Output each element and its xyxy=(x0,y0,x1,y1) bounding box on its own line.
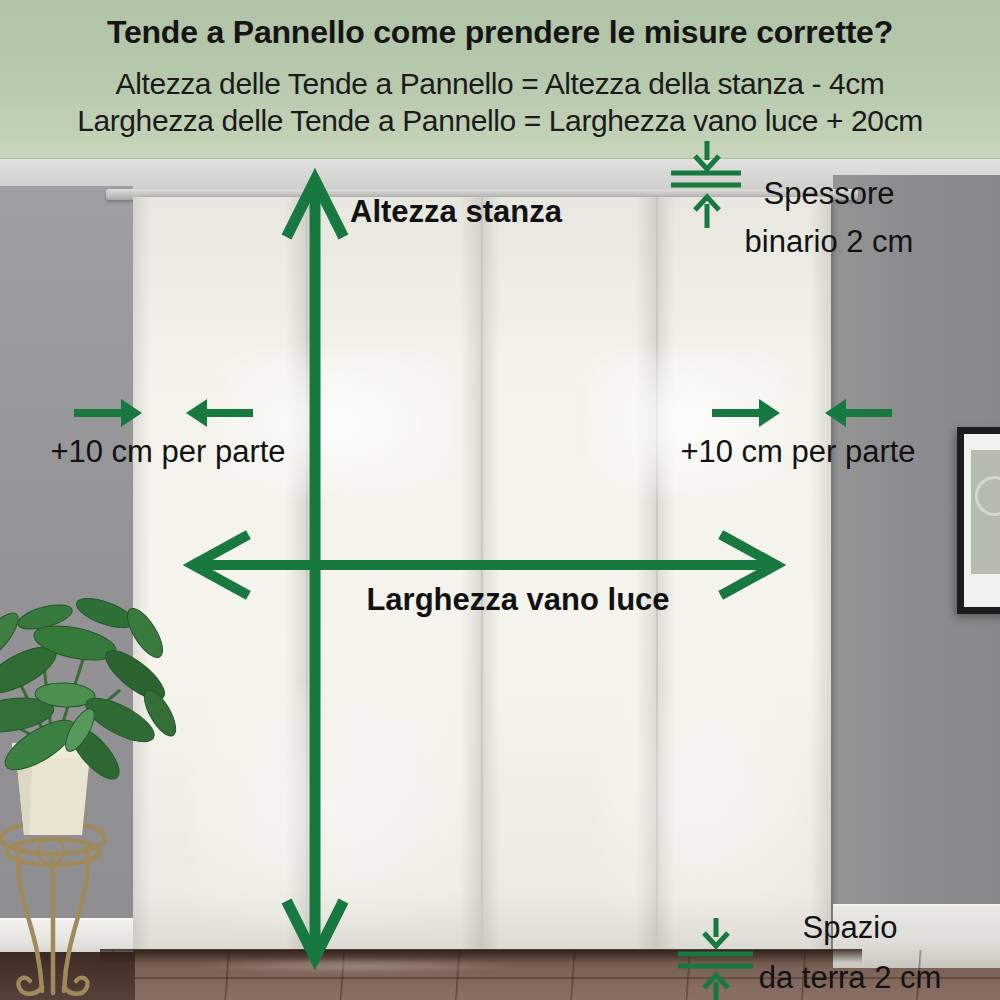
width-formula-text: Larghezza delle Tende a Pannello = Largh… xyxy=(0,104,1000,138)
picture-art xyxy=(971,450,1000,574)
floor-gap-label: Spazio da terra 2 cm xyxy=(742,903,958,1000)
rail-thickness-label: Spessore binario 2 cm xyxy=(722,170,936,266)
floor-gap-label-line2: da terra 2 cm xyxy=(742,953,958,1000)
page-title: Tende a Pannello come prendere le misure… xyxy=(0,14,1000,51)
potted-plant xyxy=(0,595,195,1000)
plant-foliage xyxy=(0,595,182,786)
floor-gap-label-line1: Spazio xyxy=(742,903,958,953)
window-glow xyxy=(583,350,788,495)
margin-right-label: +10 cm per parte xyxy=(652,434,944,470)
height-formula-text: Altezza delle Tende a Pannello = Altezza… xyxy=(0,67,1000,101)
picture-frame xyxy=(957,427,1000,614)
window-glow xyxy=(220,350,455,495)
window-glow xyxy=(190,690,470,930)
floor-reflection xyxy=(190,958,520,974)
picture-art-circle xyxy=(975,476,1000,516)
room-height-label: Altezza stanza xyxy=(350,194,562,230)
rail-thickness-label-line1: Spessore xyxy=(722,170,936,218)
margin-left-label: +10 cm per parte xyxy=(22,434,314,470)
rail-thickness-label-line2: binario 2 cm xyxy=(722,218,936,266)
window-glow xyxy=(600,700,800,920)
opening-width-label: Larghezza vano luce xyxy=(336,582,700,618)
header-banner: Tende a Pannello come prendere le misure… xyxy=(0,0,1000,159)
plant-stand xyxy=(1,822,105,994)
